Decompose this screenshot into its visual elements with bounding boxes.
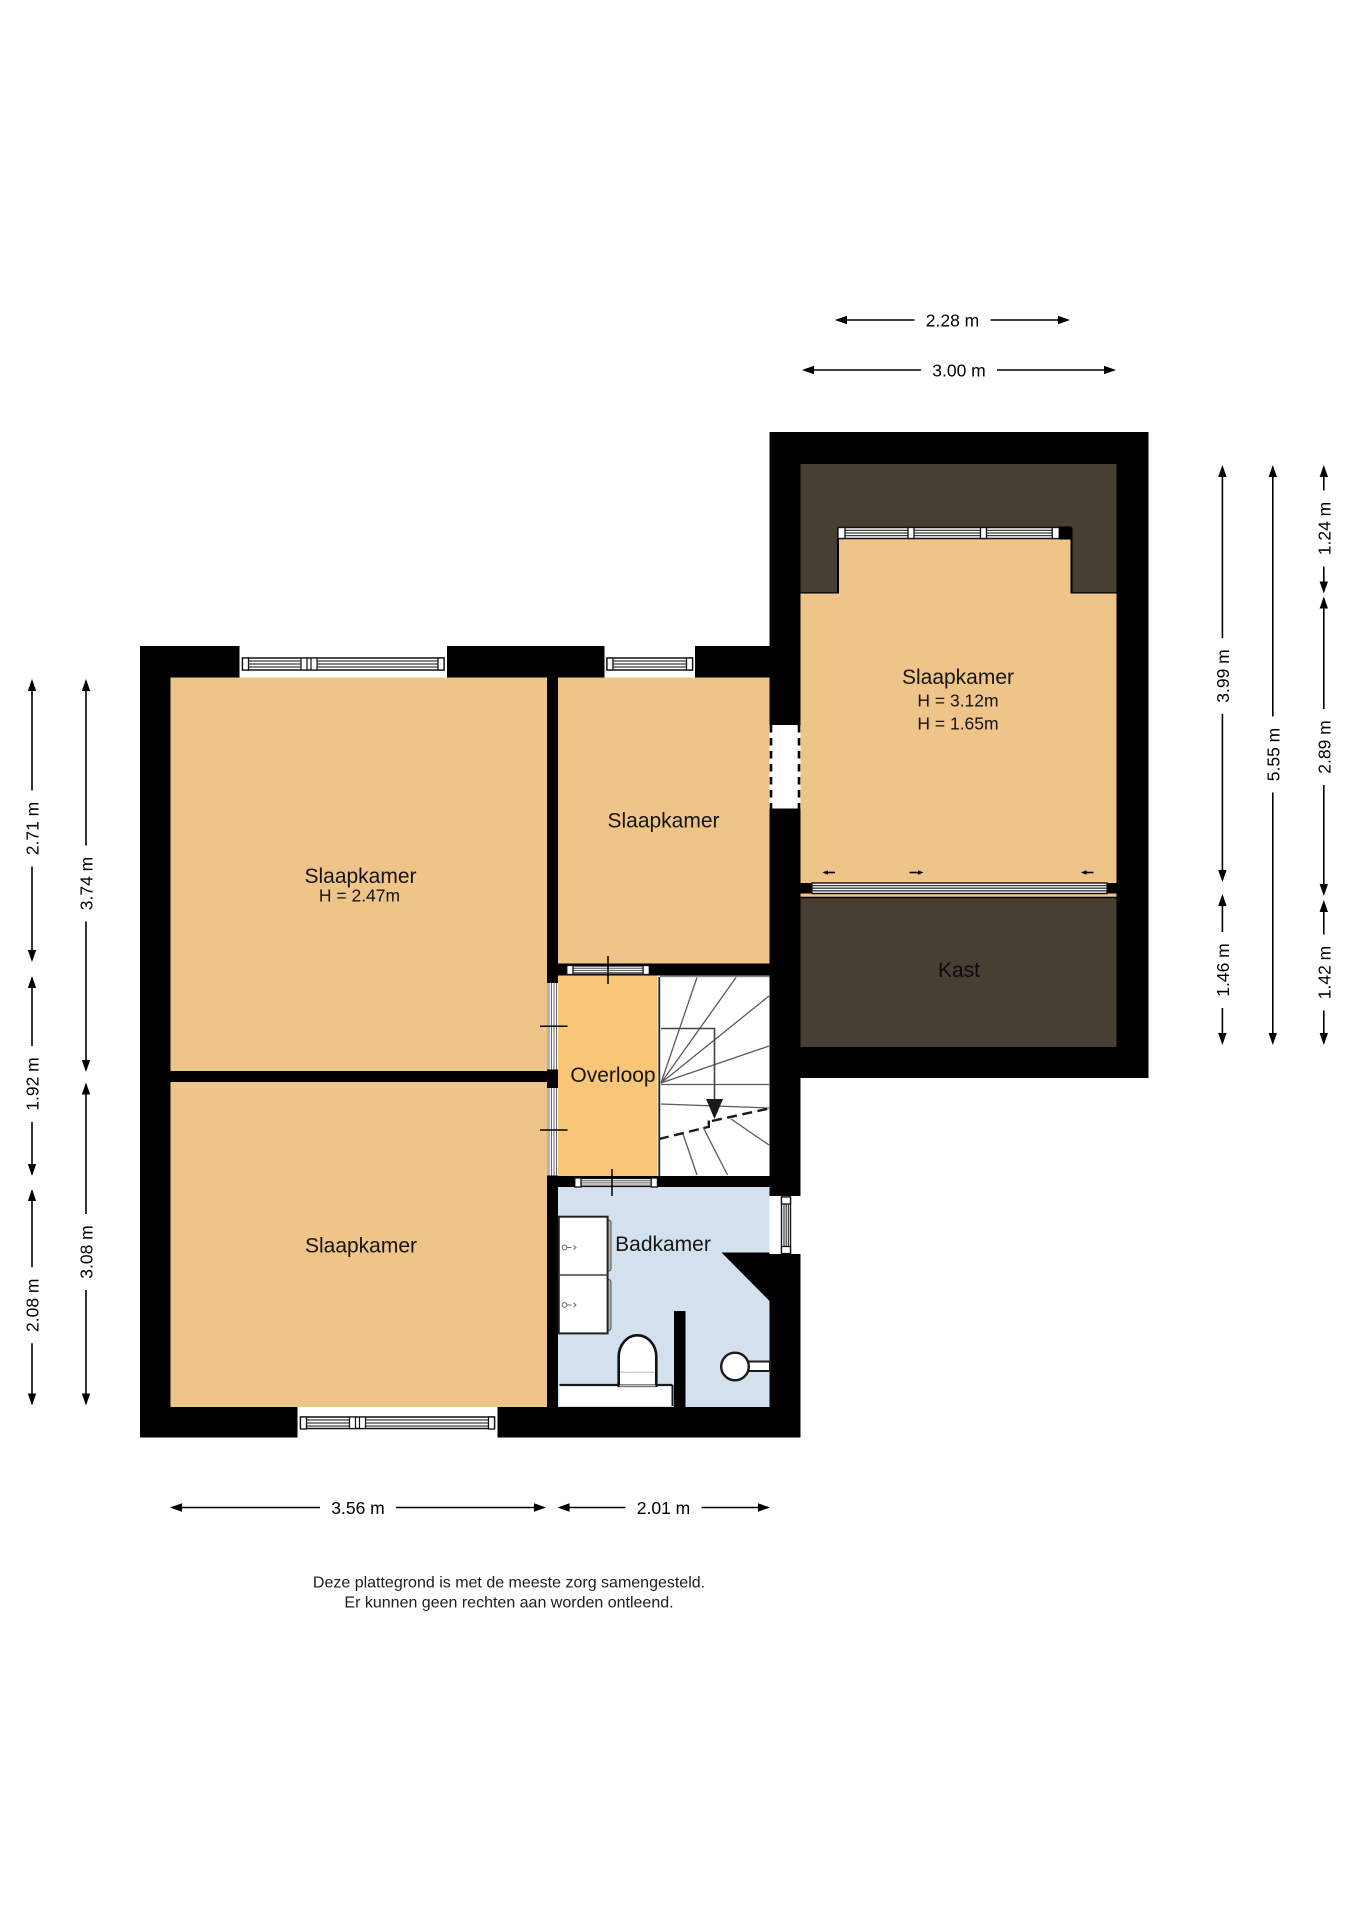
svg-text:1.92 m: 1.92 m (23, 1057, 43, 1111)
svg-text:3.56 m: 3.56 m (331, 1498, 385, 1518)
svg-text:2.08 m: 2.08 m (23, 1279, 43, 1333)
svg-text:3.99 m: 3.99 m (1213, 649, 1233, 703)
svg-text:2.89 m: 2.89 m (1314, 720, 1334, 774)
svg-text:5.55 m: 5.55 m (1263, 728, 1283, 782)
svg-text:H = 2.47m: H = 2.47m (319, 886, 400, 906)
svg-text:1.42 m: 1.42 m (1314, 946, 1334, 1000)
svg-text:Slaapkamer: Slaapkamer (305, 1235, 417, 1258)
svg-text:2.71 m: 2.71 m (23, 802, 43, 856)
svg-text:3.74 m: 3.74 m (77, 857, 97, 911)
svg-text:Slaapkamer: Slaapkamer (607, 810, 719, 833)
svg-text:Badkamer: Badkamer (615, 1233, 711, 1256)
svg-text:3.08 m: 3.08 m (77, 1225, 97, 1279)
svg-text:2.01 m: 2.01 m (637, 1498, 691, 1518)
svg-text:Kast: Kast (938, 959, 980, 982)
svg-text:Overloop: Overloop (570, 1064, 655, 1087)
svg-text:1.24 m: 1.24 m (1314, 502, 1334, 556)
svg-text:Slaapkamer: Slaapkamer (902, 666, 1014, 689)
svg-text:1.46 m: 1.46 m (1213, 943, 1233, 997)
svg-text:Er kunnen geen rechten aan wor: Er kunnen geen rechten aan worden ontlee… (344, 1594, 673, 1611)
svg-text:Deze plattegrond is met de mee: Deze plattegrond is met de meeste zorg s… (313, 1574, 705, 1591)
svg-text:3.00 m: 3.00 m (932, 360, 986, 380)
svg-text:H = 1.65m: H = 1.65m (917, 714, 998, 734)
svg-text:H = 3.12m: H = 3.12m (917, 691, 998, 711)
svg-text:2.28 m: 2.28 m (926, 310, 980, 330)
